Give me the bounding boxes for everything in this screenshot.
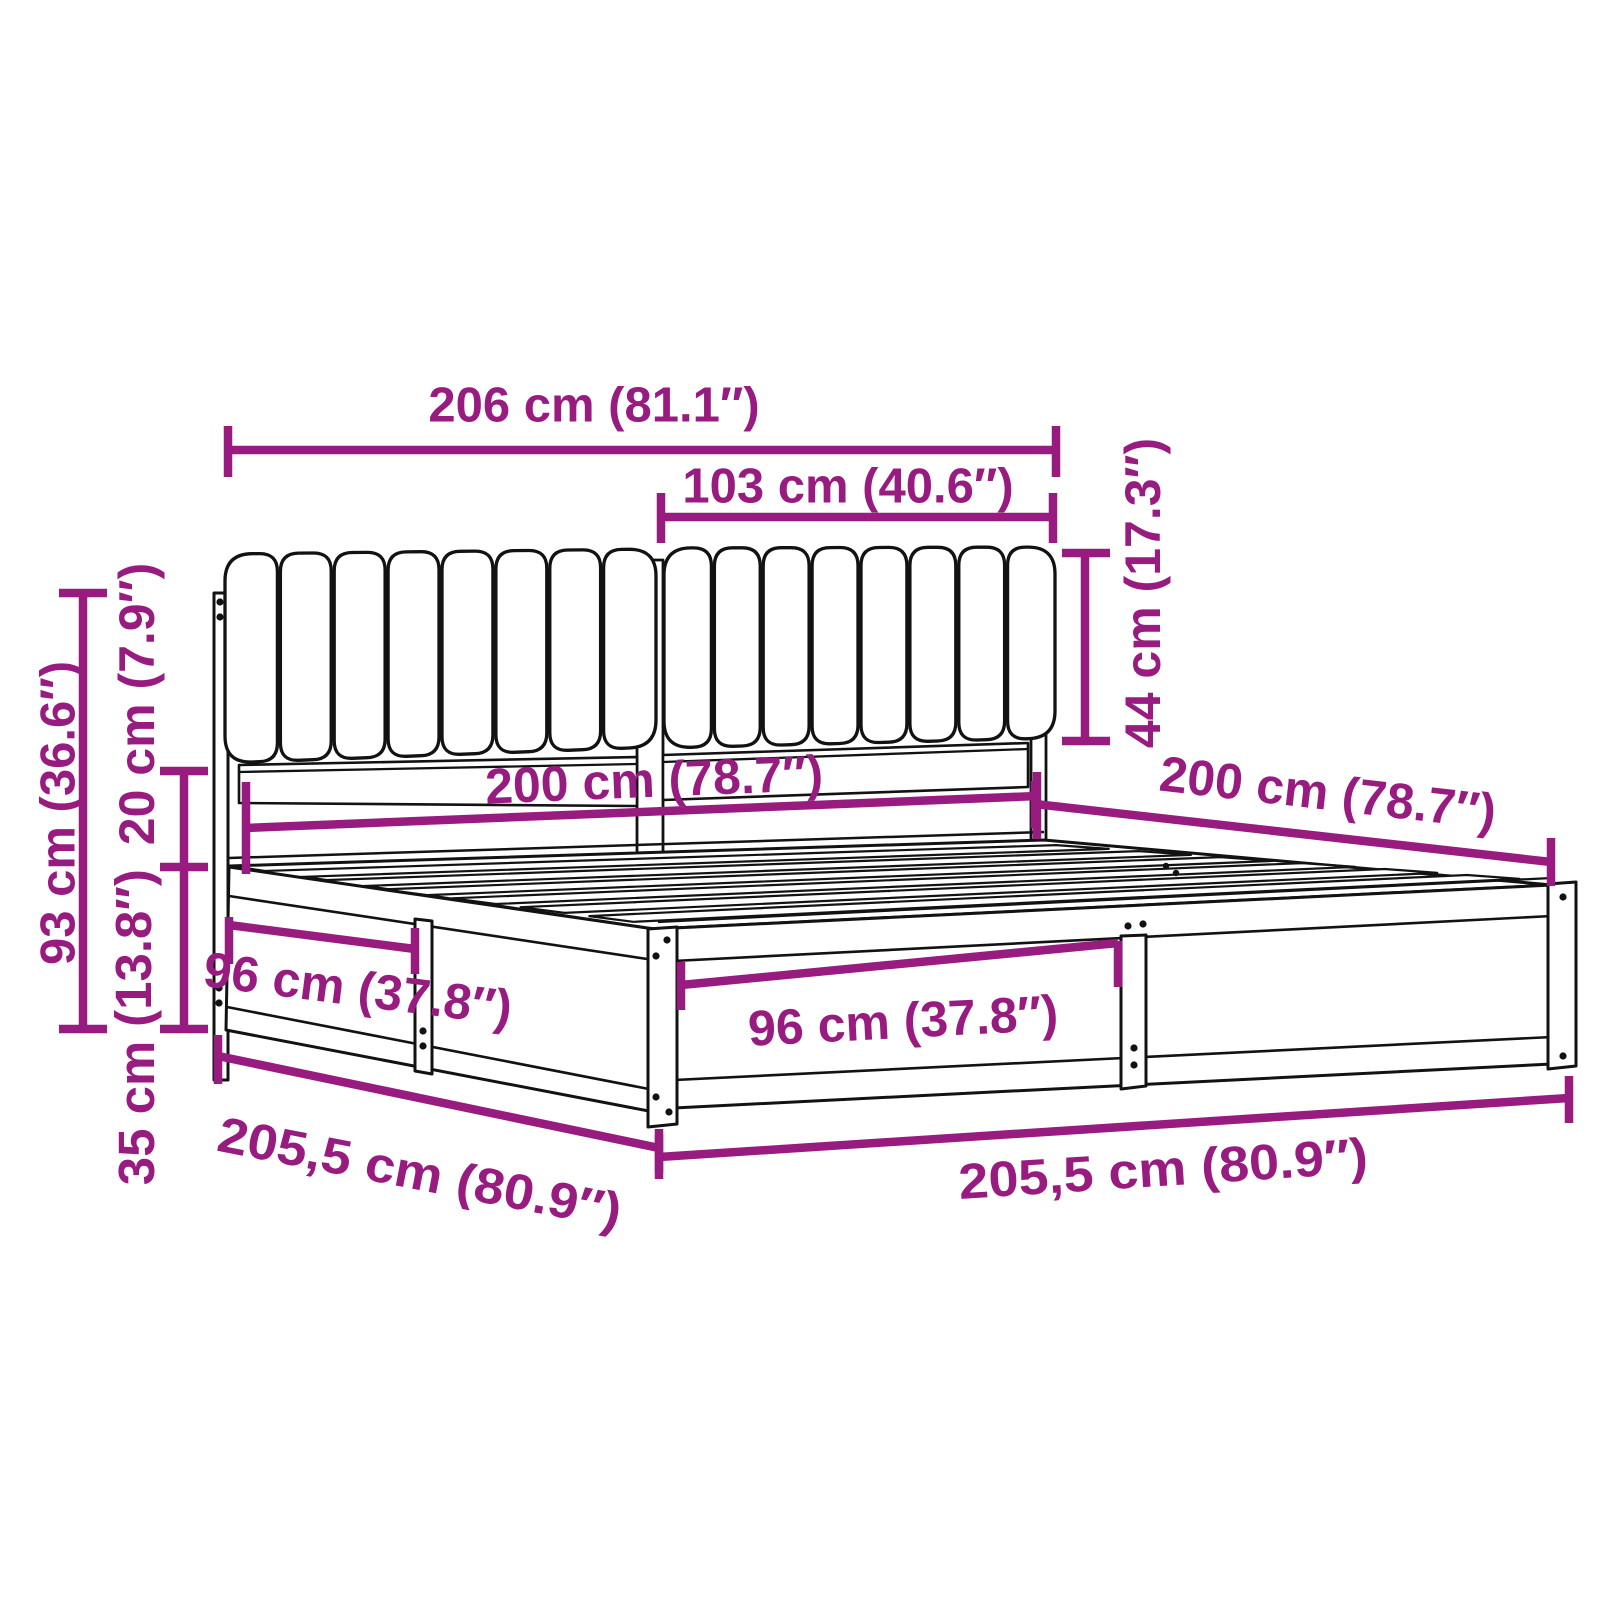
svg-text:35 cm: 35 cm [108, 1041, 165, 1186]
svg-text:93 cm (36.6″): 93 cm (36.6″) [32, 661, 86, 965]
svg-text:44 cm (17.3″): 44 cm (17.3″) [1115, 438, 1171, 748]
svg-text:(13.8″): (13.8″) [105, 869, 162, 1027]
svg-text:20 cm (7.9″): 20 cm (7.9″) [109, 563, 165, 845]
svg-text:206 cm (81.1″): 206 cm (81.1″) [428, 379, 759, 433]
svg-text:103 cm (40.6″): 103 cm (40.6″) [682, 460, 1013, 514]
